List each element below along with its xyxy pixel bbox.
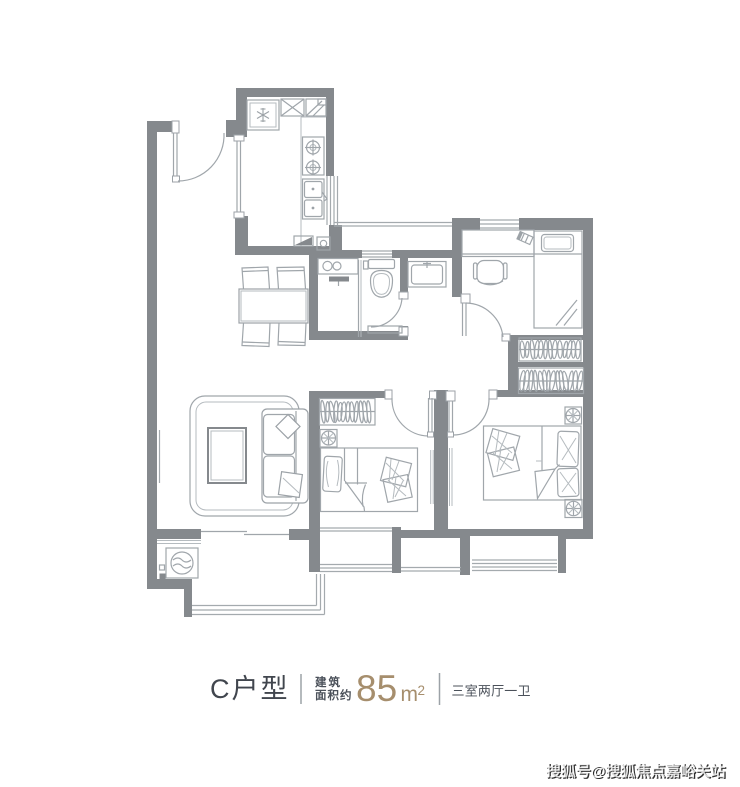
svg-text:面积约: 面积约 — [315, 688, 353, 702]
svg-text:2: 2 — [418, 683, 426, 698]
svg-text:C户型: C户型 — [210, 674, 290, 704]
svg-text:三室两厅一卫: 三室两厅一卫 — [452, 684, 531, 699]
svg-text:m: m — [401, 683, 419, 706]
svg-text:85: 85 — [356, 668, 397, 709]
svg-text:建筑: 建筑 — [315, 675, 342, 689]
